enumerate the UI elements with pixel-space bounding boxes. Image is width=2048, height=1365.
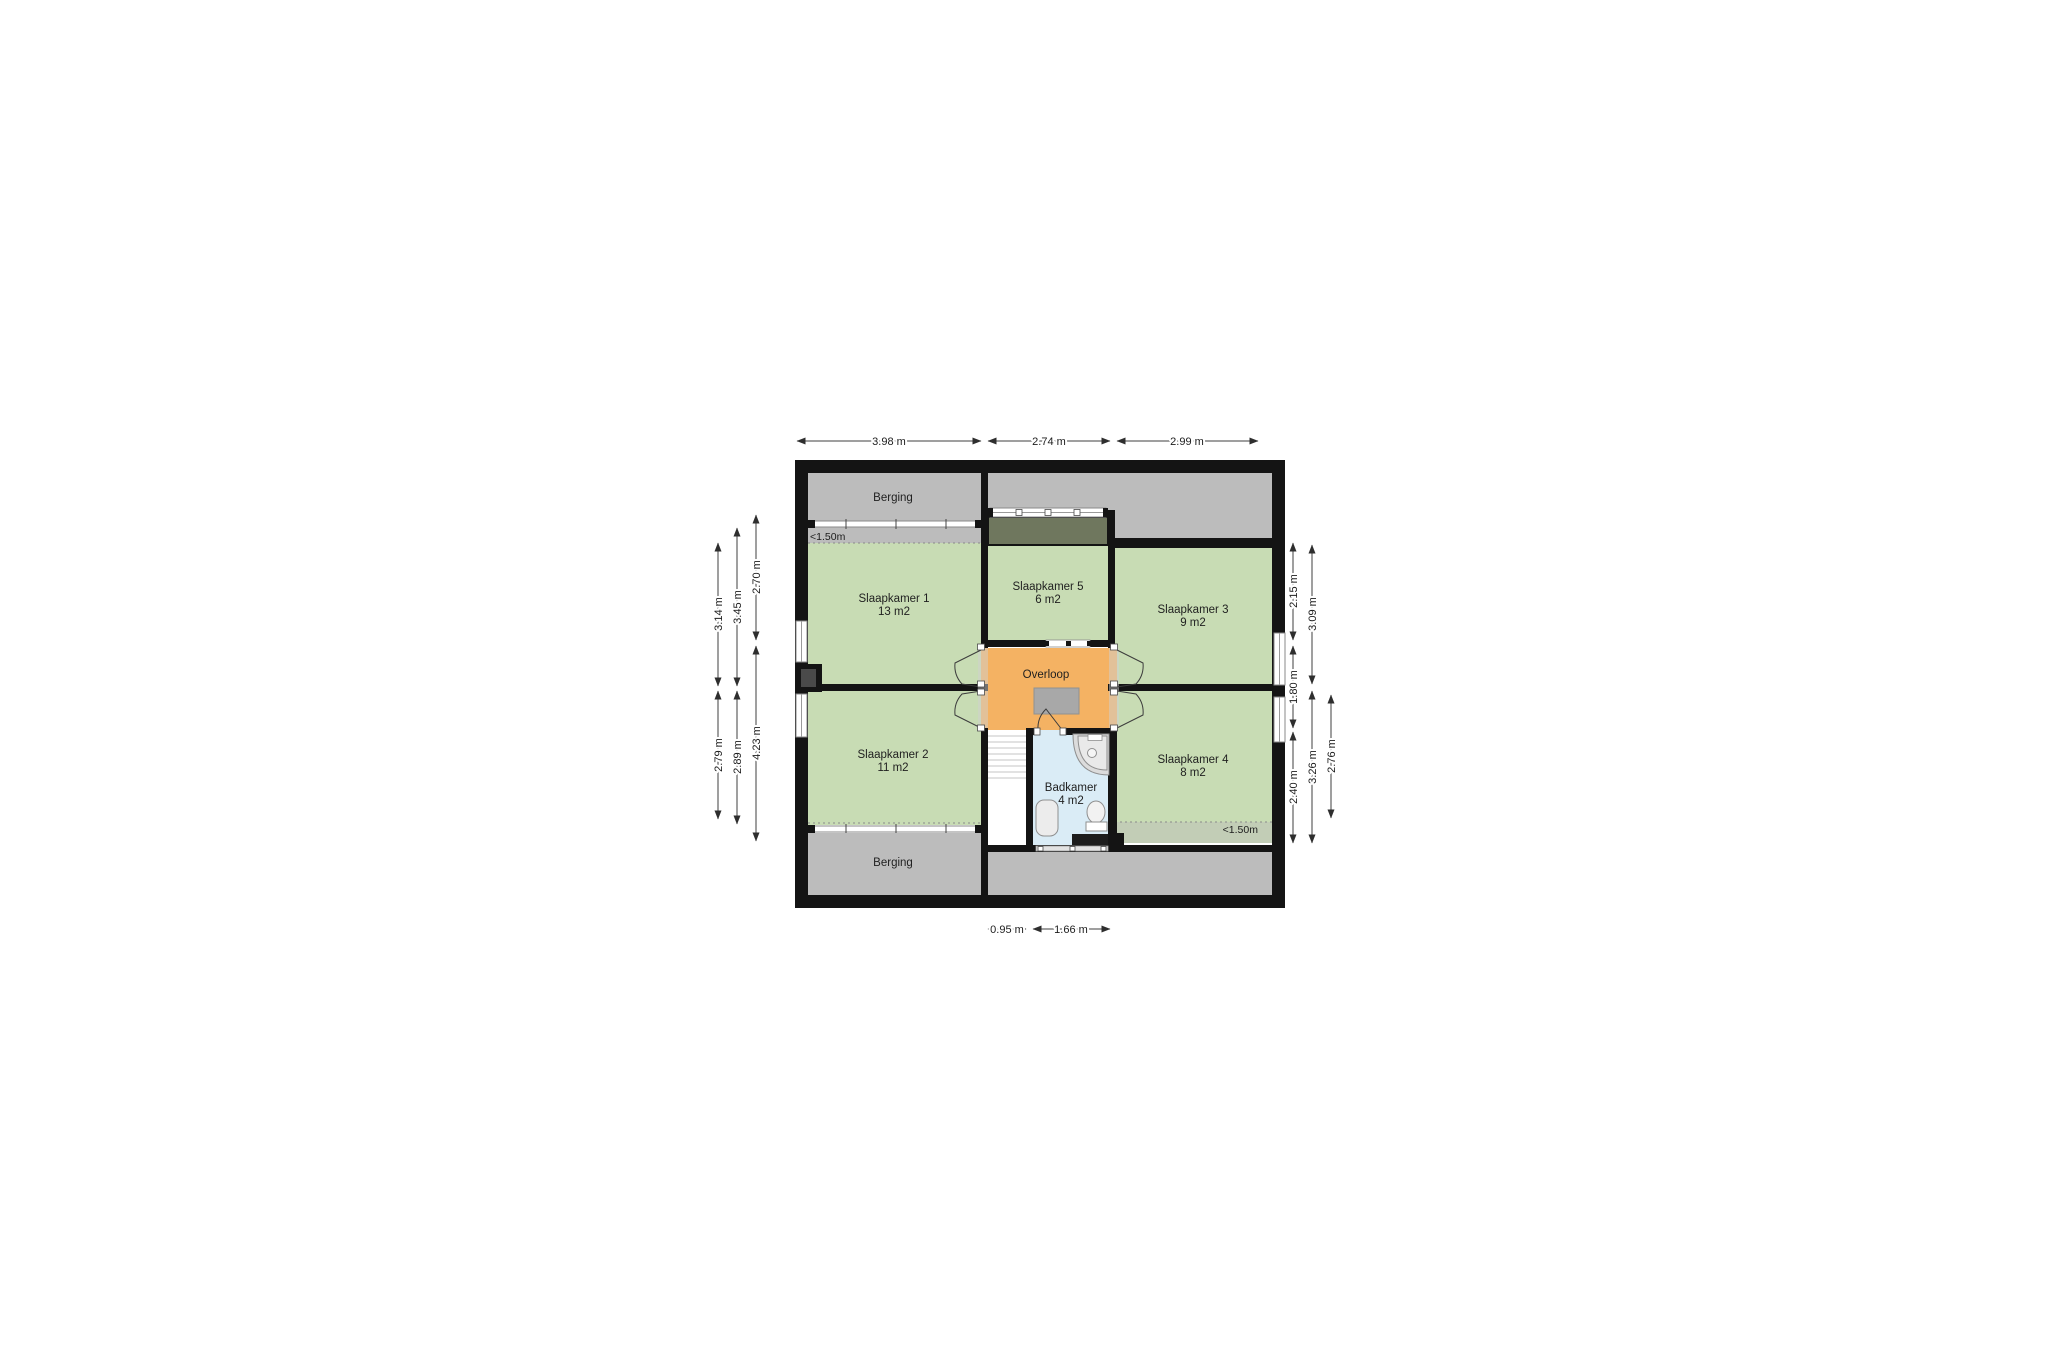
knee-wall-top (808, 519, 982, 529)
bathroom-sink (1036, 800, 1058, 836)
svg-text:1.80 m: 1.80 m (1288, 670, 1300, 704)
svg-text:0.95 m: 0.95 m (990, 924, 1024, 936)
label-slaapkamer-2: Slaapkamer 2 (858, 749, 929, 761)
svg-text:3.26 m: 3.26 m (1307, 750, 1319, 784)
svg-text:2.40 m: 2.40 m (1288, 770, 1300, 804)
window-left-2 (796, 694, 807, 737)
area-badkamer: 4 m2 (1058, 795, 1084, 807)
slaapkamer-5-opening (1044, 640, 1092, 647)
svg-text:2.89 m: 2.89 m (732, 740, 744, 774)
knee-label-bottom-right: <1.50m (1223, 824, 1259, 836)
stair-void (1034, 688, 1079, 714)
svg-text:2.99 m: 2.99 m (1170, 436, 1204, 448)
label-berging-top: Berging (873, 492, 913, 504)
attic-gray-bottom-right (988, 852, 1272, 895)
label-berging-bottom: Berging (873, 857, 913, 869)
svg-text:2.74 m: 2.74 m (1032, 436, 1066, 448)
label-slaapkamer-1: Slaapkamer 1 (859, 593, 930, 605)
window-right-1 (1274, 633, 1285, 685)
svg-text:3.14 m: 3.14 m (713, 597, 725, 631)
svg-text:2.76 m: 2.76 m (1326, 739, 1338, 773)
floorplan-canvas: Berging Slaapkamer 1 13 m2 Slaapkamer 5 … (0, 0, 2048, 1365)
dormer-window (988, 508, 1108, 517)
chimney (795, 664, 822, 692)
svg-text:4.23 m: 4.23 m (751, 726, 763, 760)
area-slaapkamer-5: 6 m2 (1035, 594, 1061, 606)
window-left-1 (796, 621, 807, 662)
toilet (1086, 801, 1107, 831)
area-slaapkamer-2: 11 m2 (877, 762, 908, 774)
label-badkamer: Badkamer (1045, 782, 1098, 794)
label-overloop: Overloop (1023, 669, 1070, 681)
staircase (988, 730, 1026, 845)
area-slaapkamer-3: 9 m2 (1180, 617, 1206, 629)
svg-text:3.45 m: 3.45 m (732, 590, 744, 624)
badkamer-bottom-band (1036, 846, 1108, 851)
svg-text:1.66 m: 1.66 m (1054, 924, 1088, 936)
svg-text:3.09 m: 3.09 m (1307, 597, 1319, 631)
label-slaapkamer-4: Slaapkamer 4 (1158, 754, 1230, 766)
svg-text:2.70 m: 2.70 m (751, 560, 763, 594)
dim-bottom-1: 0.95 m (988, 924, 1026, 936)
knee-wall-bottom (808, 824, 982, 834)
dormer-floor (988, 517, 1108, 545)
shower-mixer (1088, 735, 1102, 741)
area-slaapkamer-1: 13 m2 (878, 606, 910, 618)
room-slaapkamer-3 (1115, 548, 1272, 684)
svg-text:2.79 m: 2.79 m (713, 738, 725, 772)
svg-text:2.15 m: 2.15 m (1288, 574, 1300, 608)
radiator (1072, 834, 1108, 845)
label-slaapkamer-5: Slaapkamer 5 (1013, 581, 1084, 593)
svg-text:3.98 m: 3.98 m (872, 436, 906, 448)
area-slaapkamer-4: 8 m2 (1180, 767, 1206, 779)
window-right-2 (1274, 697, 1285, 742)
label-slaapkamer-3: Slaapkamer 3 (1158, 604, 1229, 616)
knee-label-top-left: <1.50m (810, 531, 846, 543)
